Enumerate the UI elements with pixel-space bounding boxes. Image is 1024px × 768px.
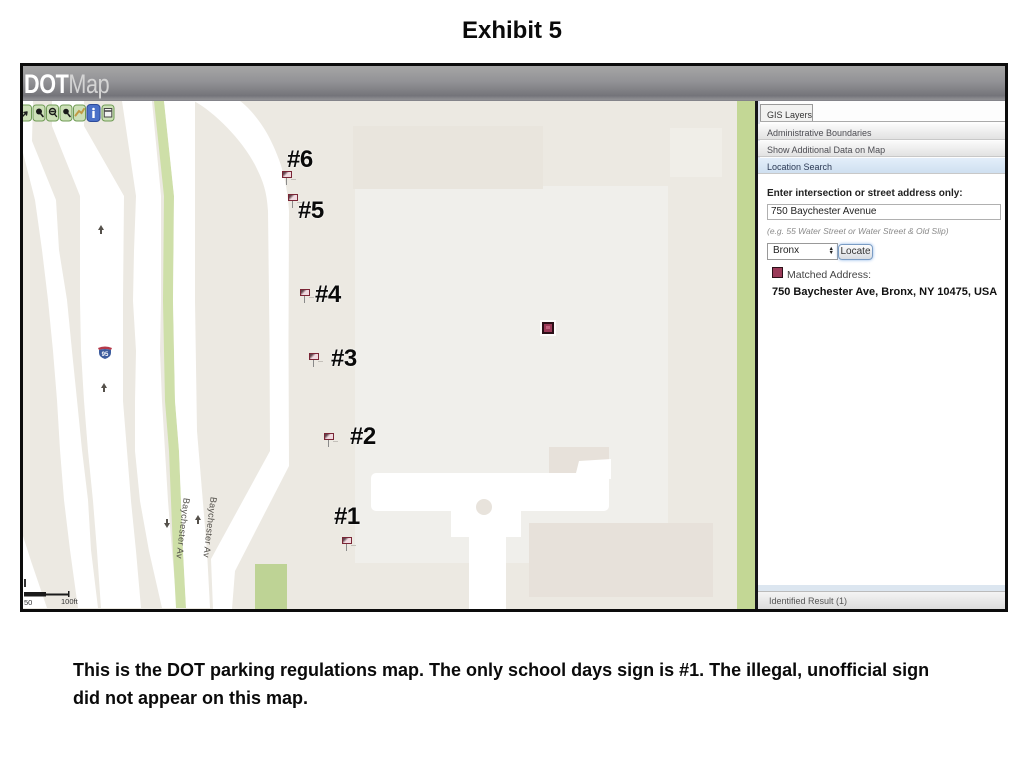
svg-text:50: 50 (24, 598, 32, 607)
svg-text:100ft: 100ft (61, 597, 79, 606)
svg-text:95: 95 (102, 352, 109, 358)
